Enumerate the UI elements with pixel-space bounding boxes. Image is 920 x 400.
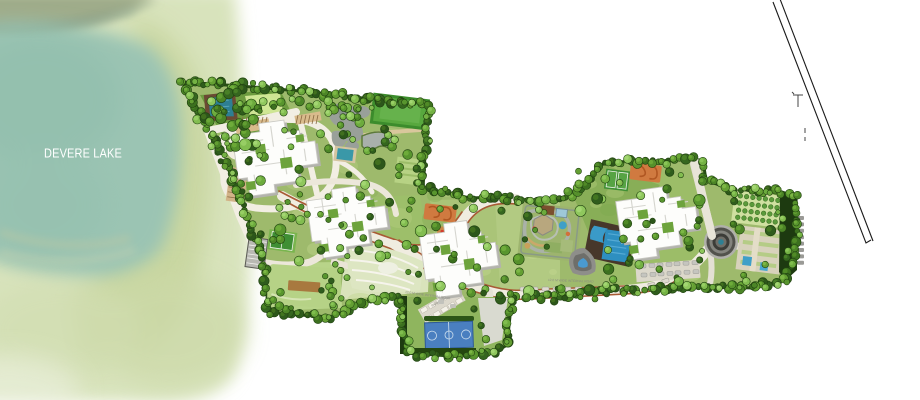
svg-text:DEVERE LAKE: DEVERE LAKE: [44, 146, 122, 161]
